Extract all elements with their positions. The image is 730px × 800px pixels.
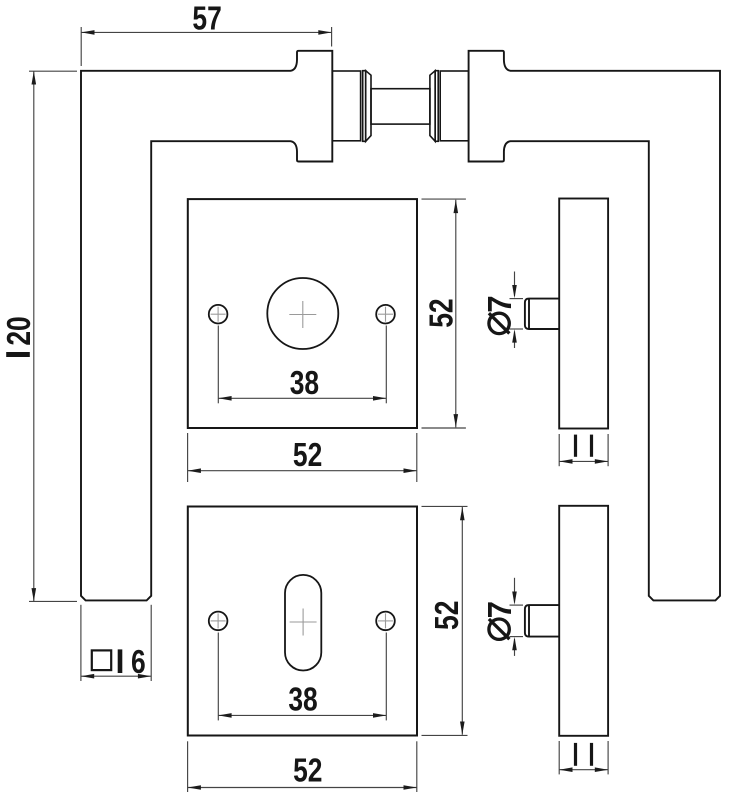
svg-text:7: 7 [481, 295, 518, 312]
svg-text:38: 38 [288, 682, 317, 718]
svg-text:52: 52 [293, 753, 322, 789]
svg-text:52: 52 [424, 298, 460, 327]
svg-text:38: 38 [290, 365, 319, 401]
svg-text:20: 20 [1, 316, 37, 345]
svg-text:6: 6 [131, 644, 146, 680]
svg-text:7: 7 [481, 601, 518, 618]
svg-text:52: 52 [293, 437, 322, 473]
svg-text:57: 57 [192, 1, 221, 37]
svg-text:52: 52 [429, 601, 465, 630]
